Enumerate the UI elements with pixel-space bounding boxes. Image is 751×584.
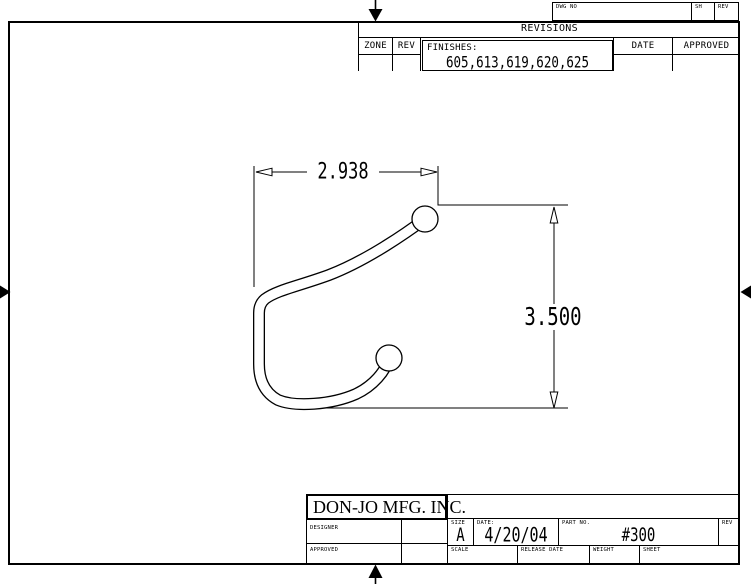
size-value: A [448,528,473,544]
approved-cell: APPROVED [306,544,402,565]
date-value: 4/20/04 [474,526,558,544]
scale-cell: SCALE [447,545,517,565]
revisions-title: REVISIONS [521,24,578,34]
hook-ball-bottom [376,345,402,371]
bottom-edge-arrow [369,565,383,584]
weight-cell: WEIGHT [589,545,639,565]
finishes-box: FINISHES: 605,613,619,620,625 [422,40,613,71]
revisions-grid-line [613,55,614,71]
rev-cell: REV [718,518,740,545]
approved-col-label: APPROVED [684,42,730,51]
designer-value-cell [402,520,447,544]
designer-label: DESIGNER [307,520,401,532]
drawing-sheet: DWG NO SH REV REVISIONS ZONE REV DATE AP… [0,0,751,584]
rev-label: REV [718,4,729,10]
designer-cell: DESIGNER [306,520,402,544]
dwg-no-label: DWG NO [556,4,577,10]
hook-ball-top [412,206,438,232]
part-no-value: #300 [559,528,718,544]
zone-label: ZONE [364,42,387,51]
width-dimension-text: 2.938 [307,162,379,182]
weight-label: WEIGHT [590,546,639,554]
approved-label: APPROVED [307,544,401,554]
sheet-label: SHEET [640,546,740,554]
revisions-col-zone: ZONE [358,38,392,55]
revisions-grid-line [672,55,673,71]
height-dim-arrow-top [550,207,558,223]
date-cell: DATE: 4/20/04 [473,518,558,545]
revisions-col-approved: APPROVED [672,38,740,55]
sheet-border [9,22,739,564]
sheet-cell: SHEET [639,545,740,565]
hook-outline [259,206,438,404]
revisions-grid-line [392,55,393,71]
company-name-box: DON-JO MFG. INC. [306,494,447,520]
height-dimension-text: 3.500 [517,304,589,330]
release-date-cell: RELEASE DATE [517,545,589,565]
height-dim-arrow-bottom [550,392,558,408]
date-col-label: DATE [632,42,655,51]
rev-cell-label: REV [719,519,740,527]
width-dim-arrow-right [421,168,437,176]
right-edge-arrow [741,286,751,299]
sh-label: SH [695,4,702,10]
release-date-label: RELEASE DATE [518,546,589,554]
title-block-empty-strip [447,494,740,518]
sh-box: SH [691,2,715,21]
finishes-values: 605,613,619,620,625 [423,54,612,69]
width-dim-arrow-left [256,168,272,176]
rev-col-label: REV [398,42,415,51]
right-extension-line [438,166,568,205]
revisions-col-date: DATE [613,38,672,55]
scale-label: SCALE [448,546,517,554]
revisions-col-rev: REV [392,38,420,55]
part-no-cell: PART NO. #300 [558,518,718,545]
top-edge-arrow [369,0,383,22]
company-name: DON-JO MFG. INC. [313,497,466,517]
rev-box: REV [714,2,739,21]
dwg-no-box: DWG NO [552,2,692,21]
size-cell: SIZE A [447,518,473,545]
revisions-grid-line [358,55,359,71]
revisions-header: REVISIONS [358,21,740,38]
revisions-grid-line [420,55,421,71]
